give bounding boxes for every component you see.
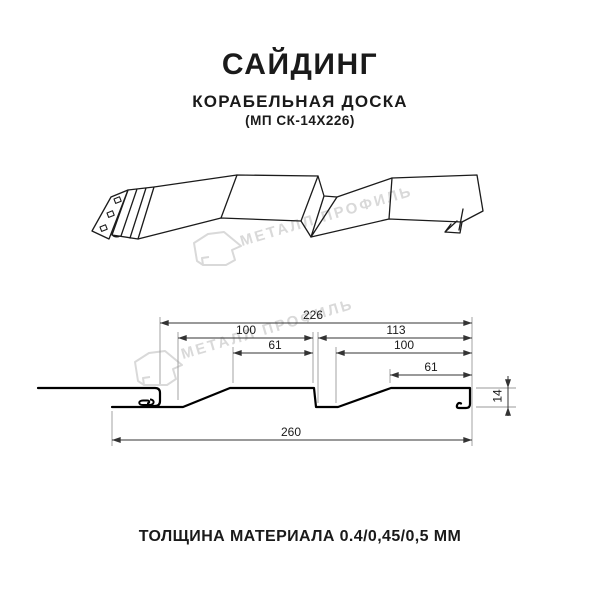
profile-3d-drawing — [92, 175, 483, 239]
lock-curl — [139, 400, 153, 406]
dim-label-226: 226 — [303, 309, 323, 321]
product-drawing-page: МЕТАЛЛ ПРОФИЛЬ МЕТАЛЛ ПРОФИЛЬ — [0, 0, 600, 600]
dim-label-61-right: 61 — [424, 361, 437, 373]
page-title: САЙДИНГ — [222, 48, 378, 82]
dim-label-61-left: 61 — [268, 339, 281, 351]
page-subtitle: КОРАБЕЛЬНАЯ ДОСКА — [192, 92, 408, 112]
adjacent-panel-lock — [38, 388, 160, 406]
watermark-logo-lower — [135, 351, 182, 385]
main-profile-outline — [112, 388, 470, 408]
thickness-note: ТОЛЩИНА МАТЕРИАЛА 0.4/0,45/0,5 ММ — [139, 528, 462, 546]
product-model: (МП СК-14Х226) — [245, 113, 355, 128]
dim-label-100-right: 100 — [394, 339, 414, 351]
dim-label-100-left: 100 — [236, 324, 256, 336]
dim-label-260: 260 — [281, 426, 301, 438]
watermark-logo-upper — [194, 232, 241, 265]
dim-label-14: 14 — [489, 390, 507, 404]
drawing-linework — [0, 0, 600, 600]
profile-cross-section — [38, 388, 470, 408]
dim-label-113: 113 — [386, 324, 405, 336]
